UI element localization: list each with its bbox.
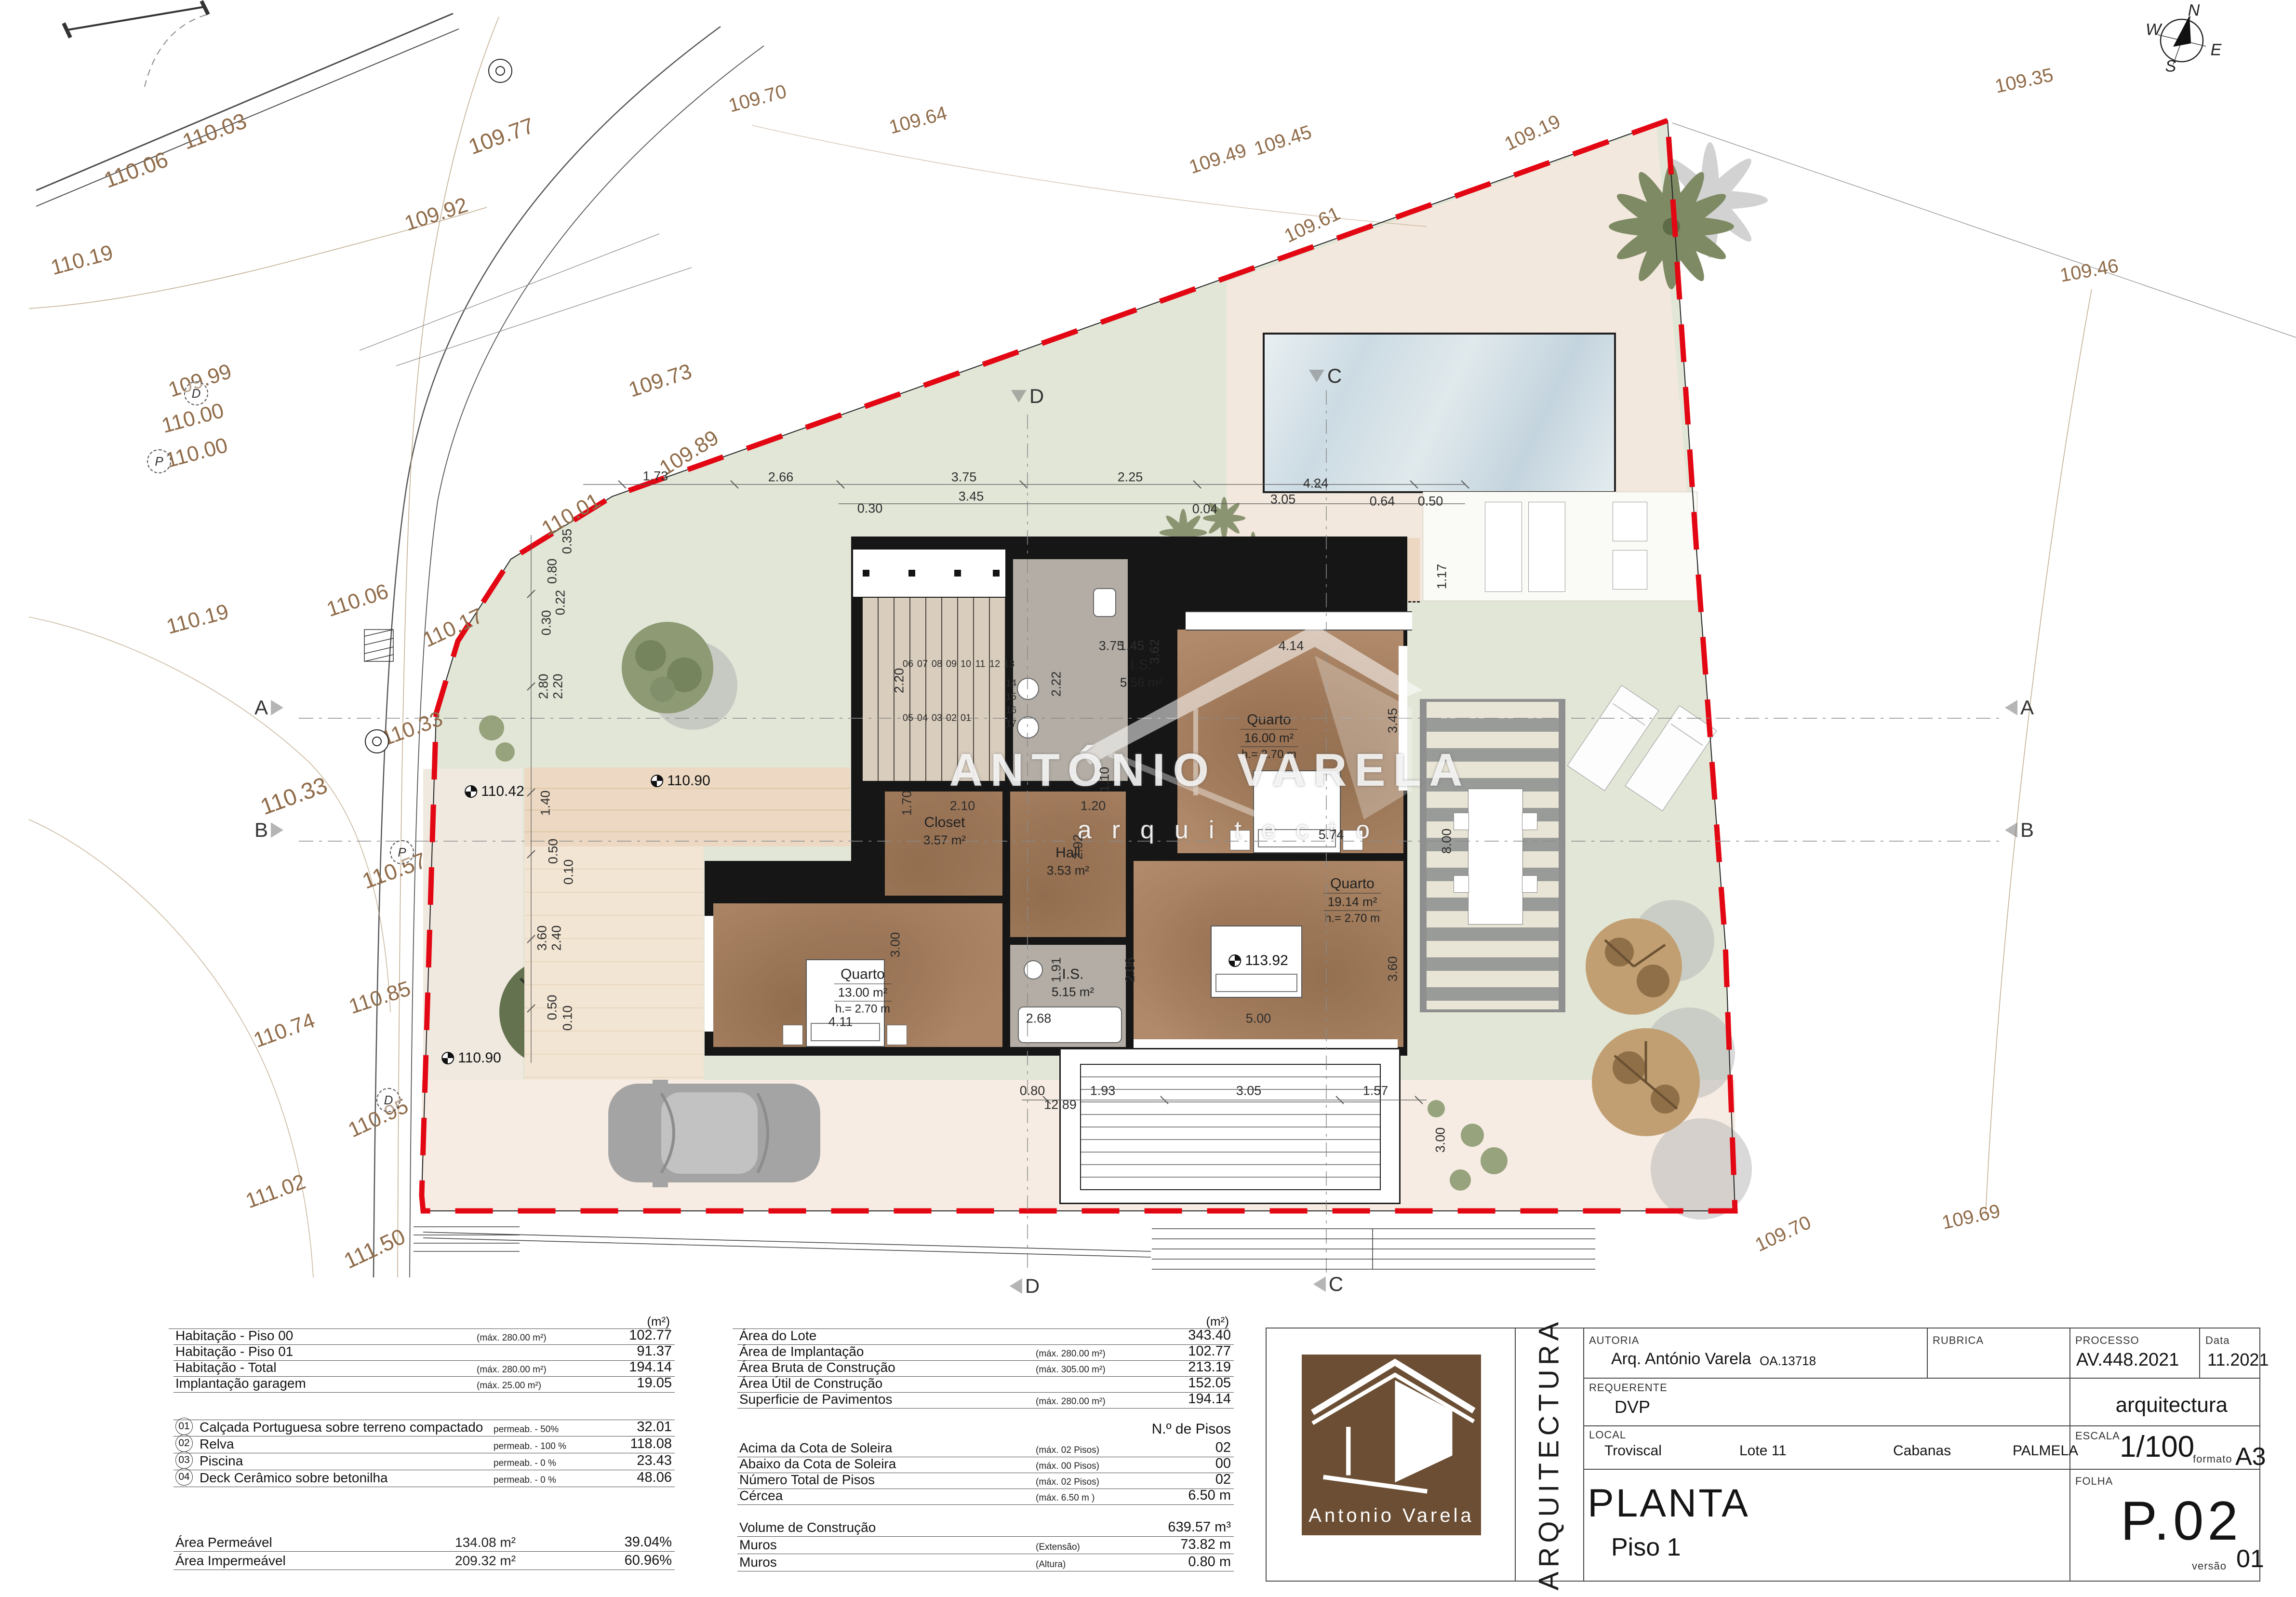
processo-label: PROCESSO	[2075, 1334, 2139, 1347]
folha-label: FOLHA	[2075, 1475, 2113, 1488]
formato-label: formato	[2193, 1453, 2232, 1465]
versao-label: versão	[2192, 1560, 2227, 1572]
formato-value: A3	[2235, 1442, 2266, 1471]
logo-house-icon	[1302, 1355, 1481, 1499]
sheet-number: P.02	[2121, 1490, 2242, 1553]
local-value-4: PALMELA	[2013, 1443, 2078, 1459]
autoria-value: Arq. António Varela	[1611, 1350, 1751, 1369]
requerente-label: REQUERENTE	[1589, 1382, 1668, 1394]
data-value: 11.2021	[2207, 1350, 2269, 1370]
logo-name: Antonio Varela	[1302, 1505, 1481, 1527]
drawing-title: PLANTA	[1588, 1481, 1750, 1526]
local-label: LOCAL	[1589, 1429, 1626, 1441]
oa-number: OA.13718	[1760, 1354, 1816, 1369]
title-block: Antonio Varela ARQUITECTURA AUTORIA Arq.…	[0, 0, 2296, 1597]
discipline-value: arquitectura	[2069, 1393, 2228, 1417]
local-value-1: Troviscal	[1604, 1443, 1662, 1459]
rubrica-label: RUBRICA	[1933, 1334, 1984, 1347]
discipline-vertical: ARQUITECTURA	[1515, 1328, 1583, 1581]
escala-value: 1/100	[2120, 1430, 2194, 1464]
autoria-label: AUTORIA	[1589, 1334, 1639, 1347]
drawing-subtitle: Piso 1	[1611, 1533, 1681, 1562]
data-label: Data	[2205, 1334, 2229, 1347]
drawing-sheet: I.S.5.56 m² Quarto16.00 m²h.= 2.70 m Clo…	[0, 0, 2296, 1597]
architect-logo: Antonio Varela	[1302, 1355, 1481, 1535]
escala-label: ESCALA	[2075, 1430, 2120, 1442]
local-value-3: Cabanas	[1893, 1443, 1951, 1459]
local-value-2: Lote 11	[1739, 1443, 1787, 1459]
versao-value: 01	[2236, 1544, 2264, 1573]
processo-value: AV.448.2021	[2076, 1350, 2179, 1370]
requerente-value: DVP	[1615, 1397, 1650, 1417]
